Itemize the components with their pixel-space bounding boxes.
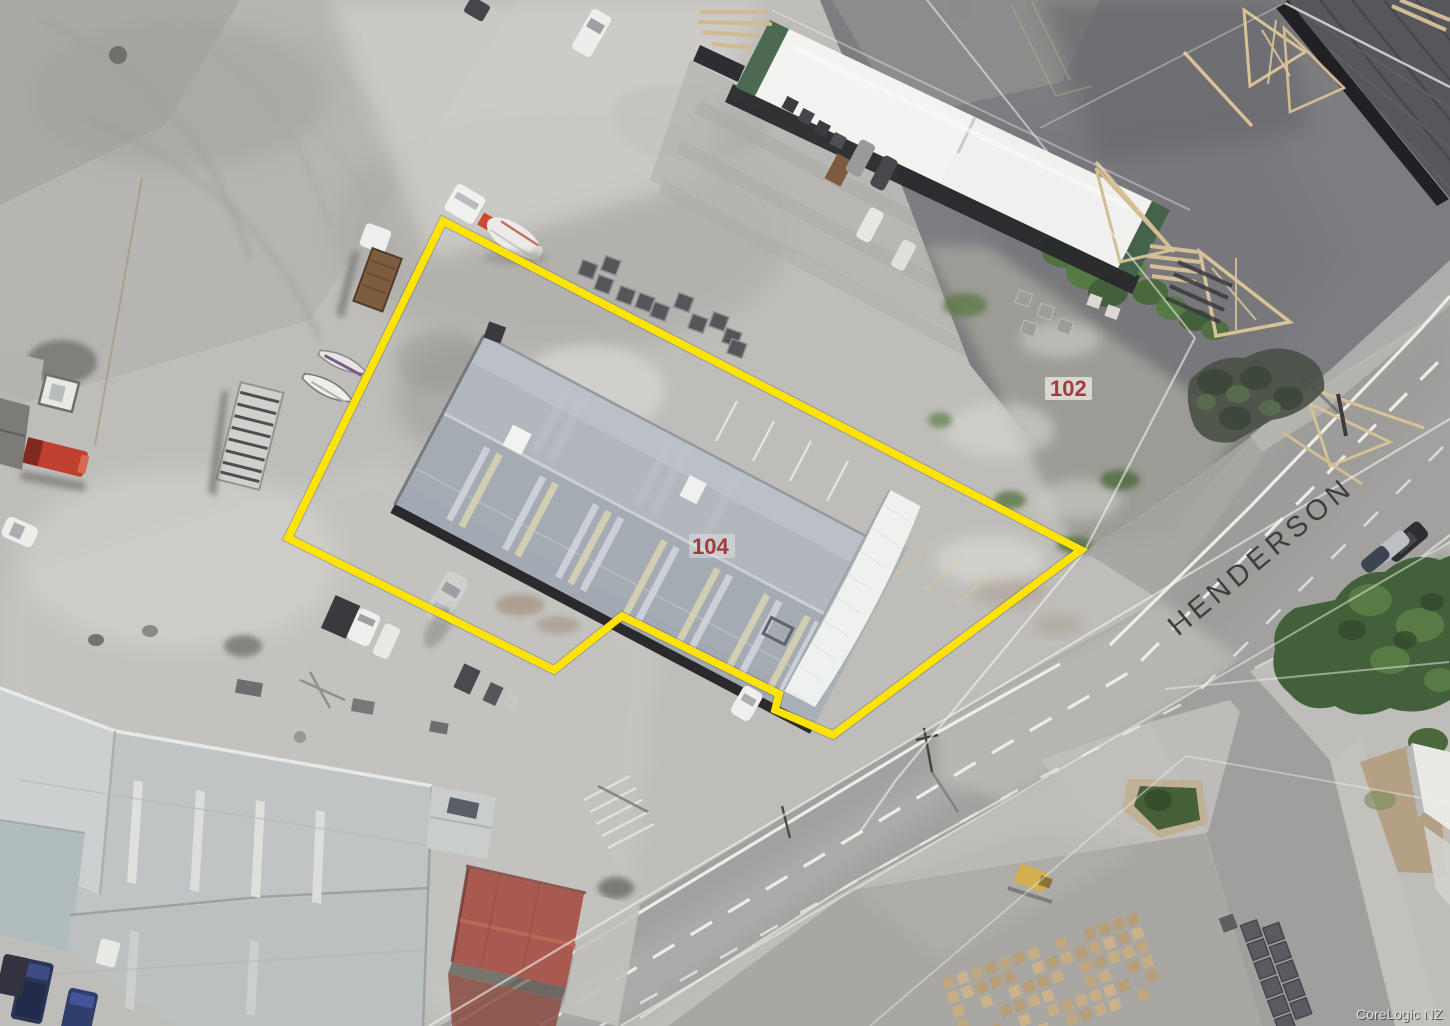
svg-text:104: 104 [692,534,729,559]
svg-text:CoreLogic NZ: CoreLogic NZ [1356,1006,1443,1022]
svg-text:102: 102 [1050,376,1087,401]
